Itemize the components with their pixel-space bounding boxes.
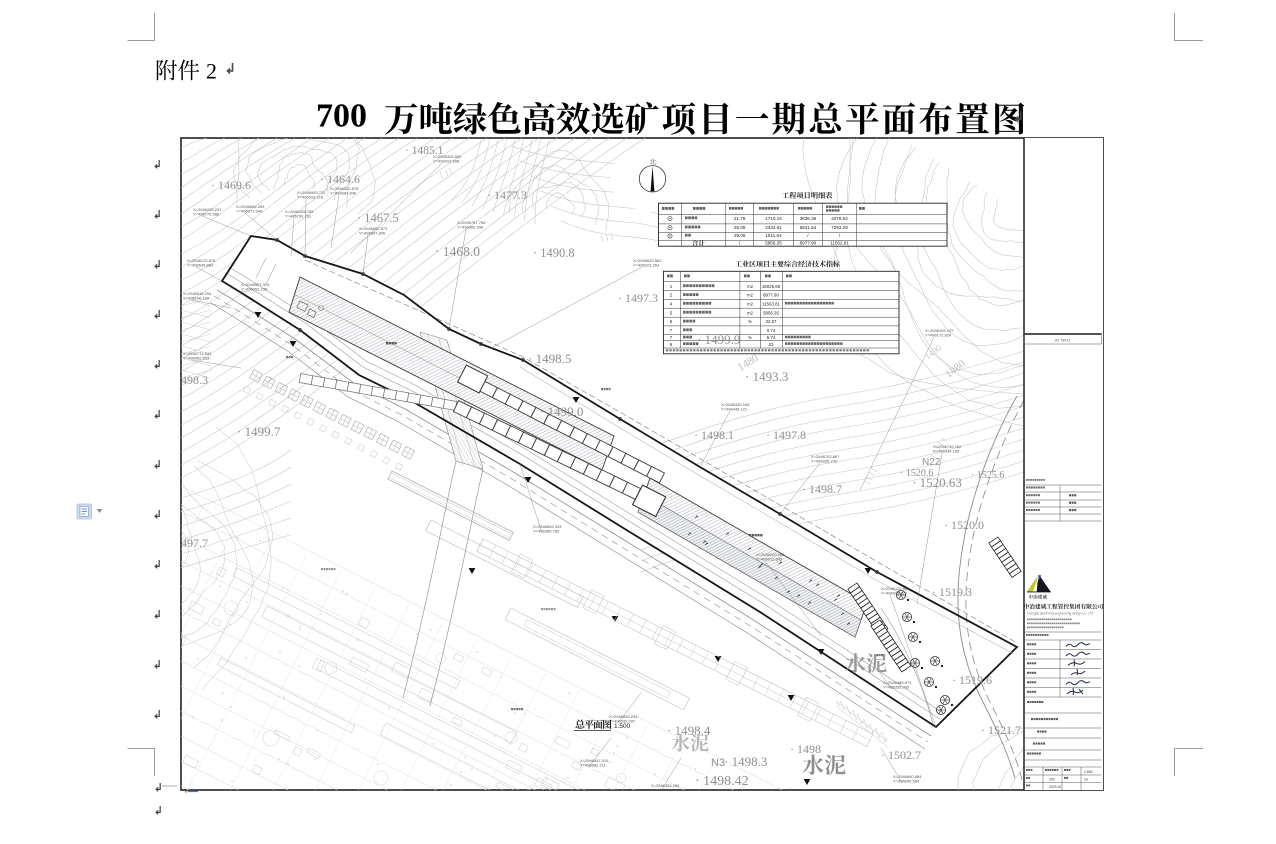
svg-text:· 1520.0: · 1520.0 [944, 518, 984, 532]
svg-text:· 1493.3: · 1493.3 [745, 369, 788, 384]
svg-text:· 1519.3: · 1519.3 [932, 585, 972, 599]
svg-text:1:500: 1:500 [1084, 770, 1093, 774]
svg-text:· 1499.7: · 1499.7 [237, 424, 281, 439]
svg-text:Y=496512.845: Y=496512.845 [756, 557, 783, 562]
svg-text:29.05: 29.05 [734, 233, 746, 238]
svg-text:8977.90: 8977.90 [800, 240, 817, 245]
svg-text:11562.81: 11562.81 [830, 240, 849, 245]
svg-text:Y=496982.211: Y=496982.211 [580, 763, 607, 768]
svg-text:Y=496690.584: Y=496690.584 [893, 779, 920, 784]
svg-text:Y=496652.235: Y=496652.235 [241, 287, 268, 292]
svg-text:32.57: 32.57 [766, 319, 778, 324]
svg-text:· 1485.1: · 1485.1 [405, 145, 444, 157]
svg-text:X=2946348.903: X=2946348.903 [756, 834, 785, 839]
svg-text:· 1498.3: · 1498.3 [724, 754, 767, 769]
svg-text:Y=496335.702: Y=496335.702 [811, 459, 838, 464]
svg-text:Y=496775.586: Y=496775.586 [193, 212, 220, 217]
svg-text:N3: N3 [711, 757, 725, 769]
svg-text:7293.29: 7293.29 [831, 225, 848, 230]
svg-text:· 1477.3: · 1477.3 [487, 188, 527, 202]
svg-text:· 1502.7: · 1502.7 [881, 748, 921, 762]
svg-text:6.74: 6.74 [767, 335, 776, 340]
svg-text:Y=496355.995: Y=496355.995 [883, 685, 910, 690]
svg-text:Y=496419.508: Y=496419.508 [433, 159, 460, 164]
svg-text:· 1499.9: · 1499.9 [697, 332, 740, 347]
svg-text:· 1520.63: · 1520.63 [912, 475, 962, 490]
svg-text:Y=496769.761: Y=496769.761 [285, 214, 312, 219]
svg-text:23: 23 [769, 342, 774, 347]
svg-text:· 1490.8: · 1490.8 [533, 246, 575, 260]
svg-text:15025.65: 15025.65 [762, 284, 781, 289]
svg-text:160: 160 [1049, 778, 1055, 782]
svg-text:· 1498.7: · 1498.7 [802, 482, 842, 496]
svg-text:· 1519.6: · 1519.6 [952, 673, 992, 687]
svg-text:700: 700 [316, 98, 367, 135]
svg-text:2023.10: 2023.10 [1049, 785, 1061, 789]
svg-text:· 1498.5: · 1498.5 [528, 351, 571, 366]
svg-text:%: % [748, 319, 752, 324]
svg-text:16: 16 [1084, 778, 1088, 782]
svg-text:· 1468.0: · 1468.0 [435, 244, 480, 259]
svg-text:3836.36: 3836.36 [800, 216, 817, 221]
svg-text:1:500: 1:500 [614, 723, 631, 730]
svg-text:m2: m2 [747, 310, 753, 315]
svg-text:N22: N22 [922, 457, 941, 468]
svg-text:· 1525.6: · 1525.6 [971, 470, 1004, 481]
svg-text:· 1498.1: · 1498.1 [694, 428, 734, 442]
svg-text:Y=496334.169: Y=496334.169 [933, 449, 960, 454]
svg-text:· 1497.8: · 1497.8 [766, 428, 806, 442]
svg-text:Y=496584.926: Y=496584.926 [756, 839, 783, 844]
svg-text:Y=496385.785: Y=496385.785 [533, 529, 560, 534]
svg-text:Y=496438.172: Y=496438.172 [881, 591, 908, 596]
svg-text:Y=496462.533: Y=496462.533 [183, 356, 210, 361]
svg-text:· 1469.6: · 1469.6 [211, 178, 251, 192]
svg-text:0.74: 0.74 [767, 328, 776, 333]
svg-text:5856.35: 5856.35 [763, 310, 779, 315]
svg-text:5841.54: 5841.54 [800, 225, 817, 230]
svg-text:· 1498.42: · 1498.42 [695, 774, 749, 789]
svg-text:· 1499.0: · 1499.0 [540, 404, 583, 419]
svg-text:21.76: 21.76 [734, 216, 746, 221]
svg-text:26.08: 26.08 [734, 225, 746, 230]
svg-text:· 1521.7: · 1521.7 [981, 723, 1021, 737]
svg-text:Y=496172.824: Y=496172.824 [925, 333, 952, 338]
svg-text:1710.16: 1710.16 [765, 216, 782, 221]
svg-text:%: % [748, 335, 752, 340]
svg-text:Y=496847.806: Y=496847.806 [359, 231, 386, 236]
svg-text:8977.90: 8977.90 [763, 293, 779, 298]
svg-text:m2: m2 [747, 293, 753, 298]
svg-text:5856.35: 5856.35 [765, 240, 782, 245]
svg-text:Y=496533.316: Y=496533.316 [297, 195, 324, 200]
svg-text:Y=496645.884: Y=496645.884 [187, 263, 214, 268]
svg-text:m2: m2 [747, 284, 753, 289]
svg-text:m2: m2 [747, 301, 753, 306]
svg-text:Y=496371.640: Y=496371.640 [236, 209, 263, 214]
svg-text:Y=496446.121: Y=496446.121 [721, 407, 748, 412]
svg-text:497.7: 497.7 [181, 536, 208, 550]
svg-text:Y=496984.846: Y=496984.846 [330, 191, 357, 196]
svg-text:498.3: 498.3 [181, 373, 208, 387]
svg-text:· 1467.5: · 1467.5 [357, 211, 399, 225]
svg-text:2334.61: 2334.61 [765, 225, 782, 230]
svg-text:11563.81: 11563.81 [762, 301, 781, 306]
svg-text:Y=496196.199: Y=496196.199 [183, 296, 210, 301]
svg-text:· 1497.3: · 1497.3 [618, 291, 658, 305]
svg-text:4278.52: 4278.52 [831, 216, 848, 221]
svg-text:zhongdu jiancheng engineering: zhongdu jiancheng engineering design co.… [1027, 612, 1094, 616]
svg-text:A1 760X1: A1 760X1 [1055, 339, 1071, 343]
svg-text:Y=496482.548: Y=496482.548 [457, 225, 484, 230]
svg-text:2: 2 [206, 59, 217, 84]
svg-text:· 1464.6: · 1464.6 [320, 172, 360, 186]
svg-text:Y=496223.353: Y=496223.353 [633, 263, 660, 268]
svg-text:· 1498: · 1498 [790, 742, 821, 756]
svg-text:1811.54: 1811.54 [765, 233, 782, 238]
